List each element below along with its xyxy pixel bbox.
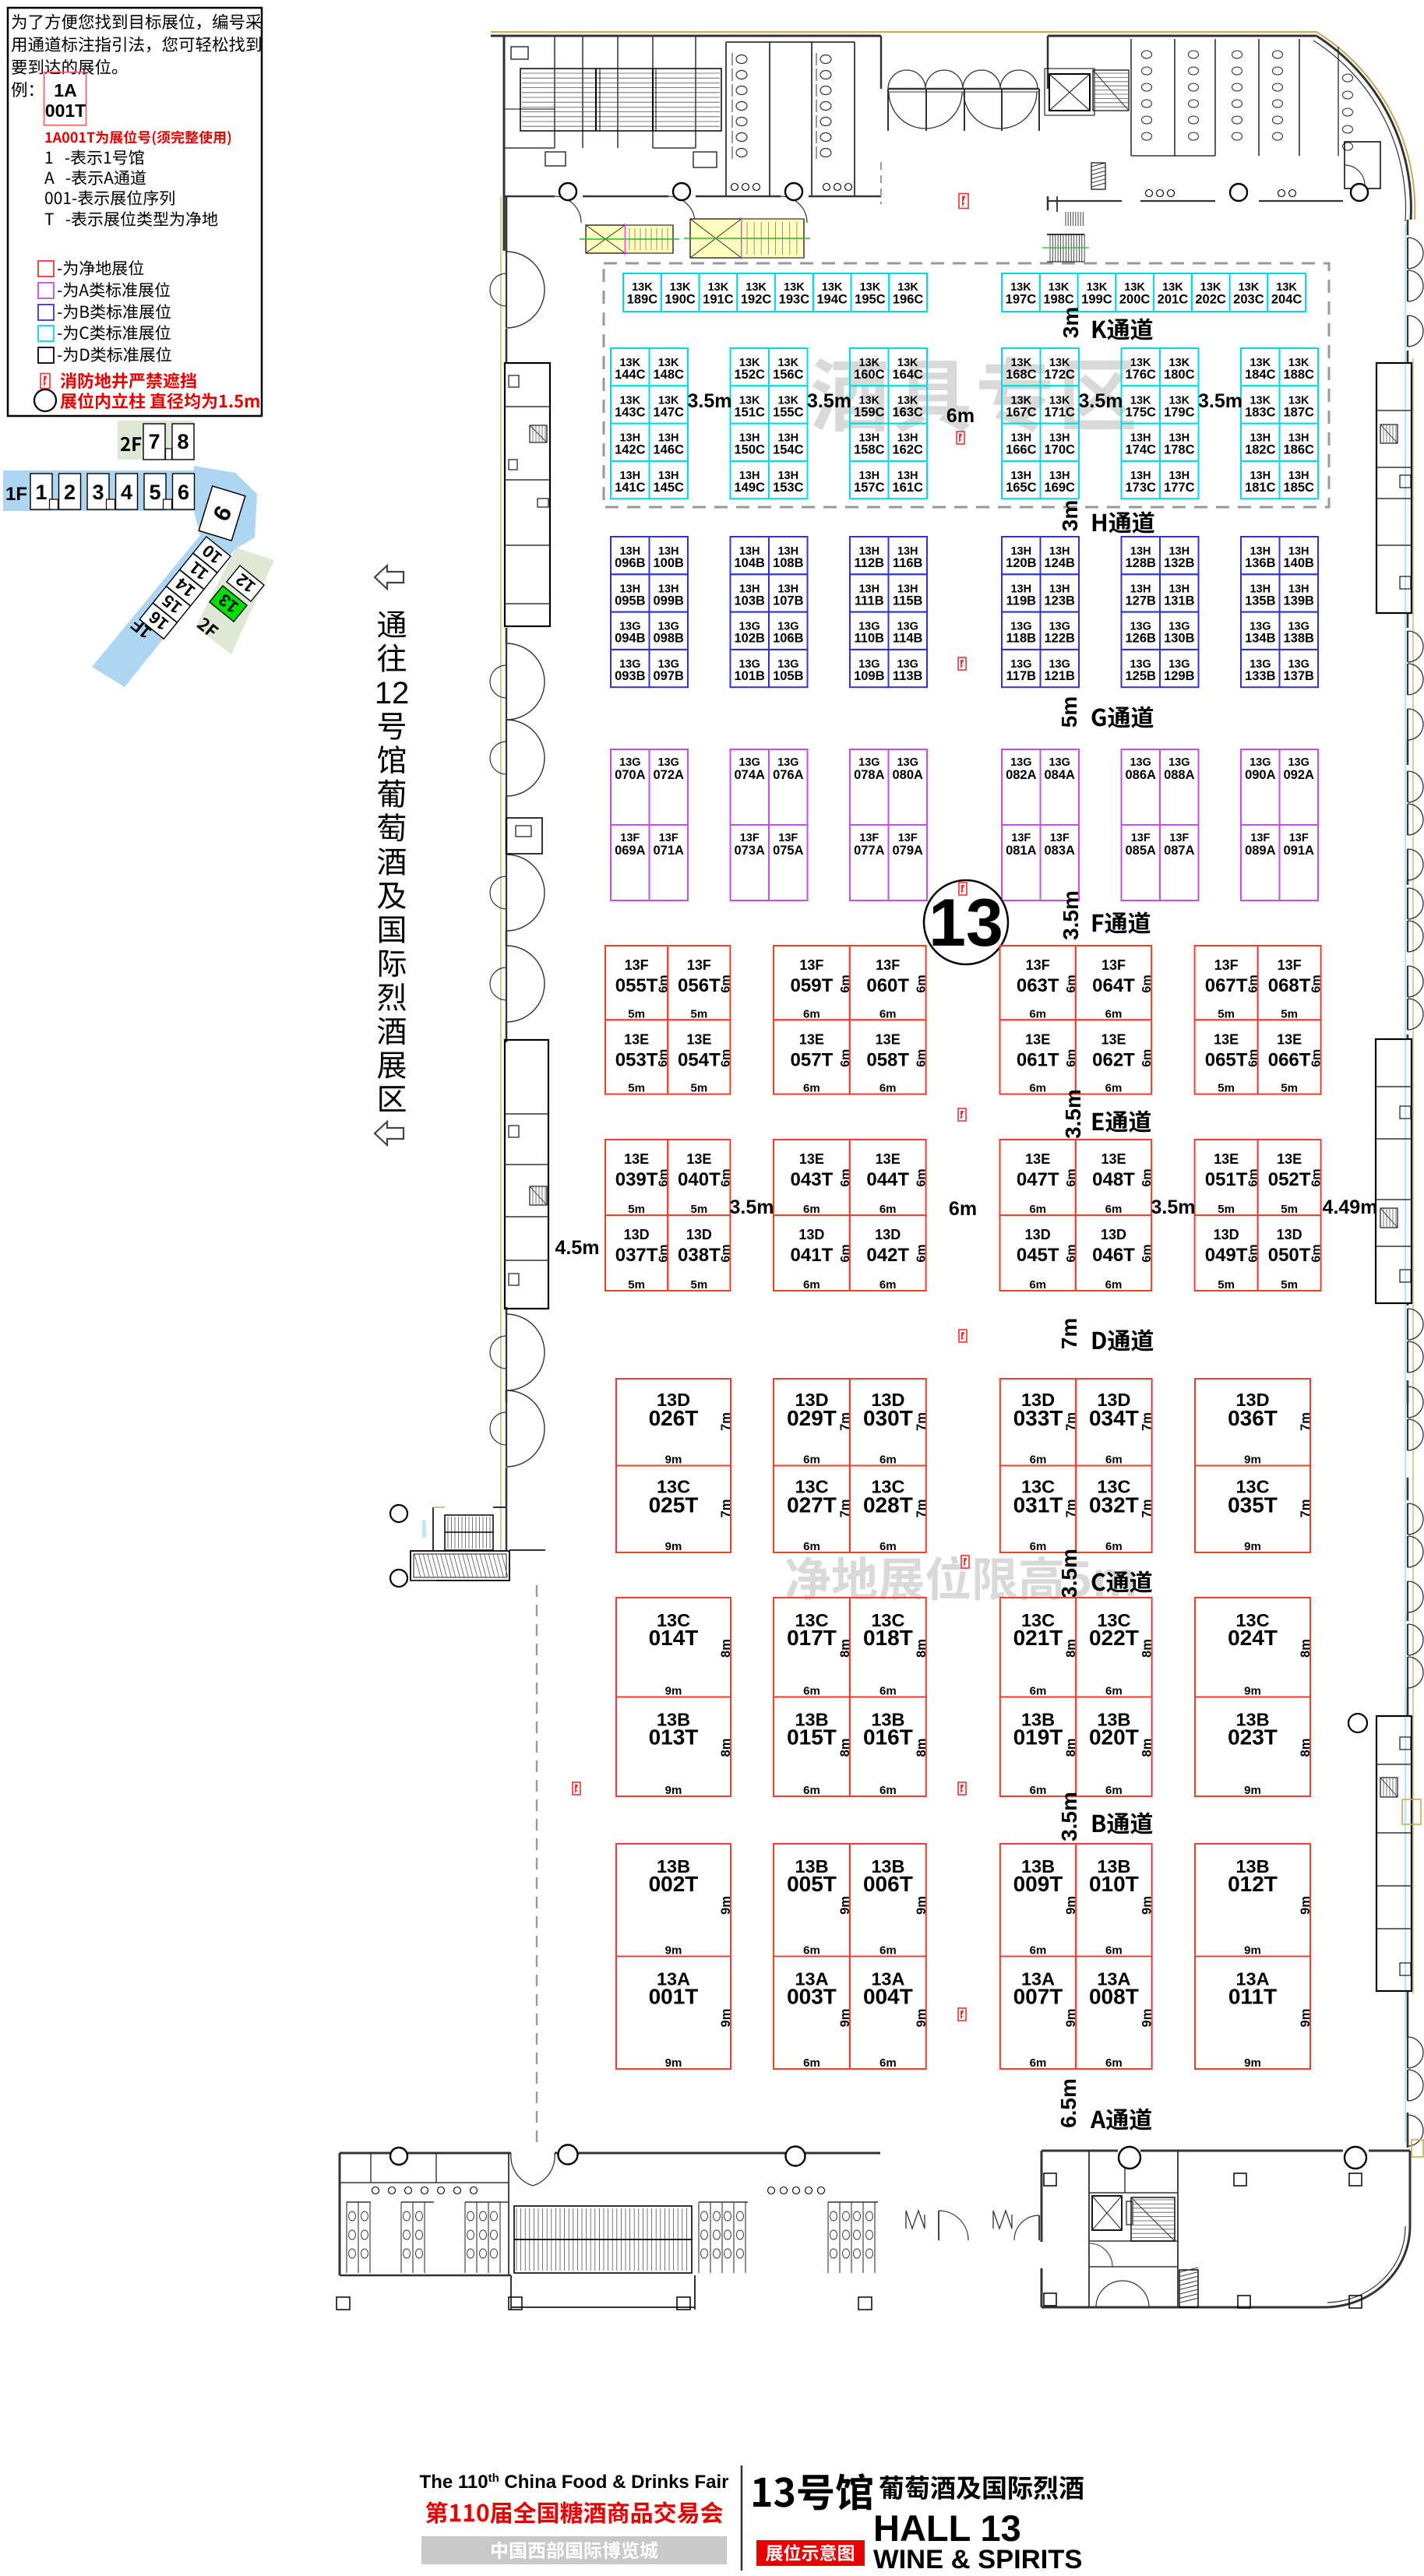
svg-text:13D: 13D [798,1227,824,1242]
svg-text:1F: 1F [5,484,27,505]
svg-text:6m: 6m [1030,1454,1047,1467]
svg-text:115B: 115B [893,594,923,608]
svg-text:6m: 6m [803,1540,820,1553]
svg-text:195C: 195C [855,293,886,307]
svg-text:025T: 025T [649,1493,699,1517]
svg-text:144C: 144C [615,368,646,382]
svg-text:097B: 097B [653,669,684,683]
svg-text:037T: 037T [615,1245,658,1266]
svg-text:013T: 013T [649,1725,699,1750]
svg-text:126B: 126B [1125,632,1156,646]
svg-text:148C: 148C [653,368,684,382]
svg-text:084A: 084A [1044,768,1075,782]
svg-text:13F: 13F [1289,832,1309,844]
svg-text:178C: 178C [1164,443,1195,457]
svg-text:13D: 13D [624,1227,650,1242]
svg-text:092A: 092A [1283,768,1314,782]
svg-text:194C: 194C [816,293,848,307]
svg-text:8m: 8m [915,1639,929,1658]
svg-text:13G: 13G [1168,756,1190,769]
svg-text:7m: 7m [1057,1318,1081,1349]
svg-text:137B: 137B [1283,669,1314,683]
svg-text:106B: 106B [773,632,804,646]
svg-text:017T: 017T [787,1626,837,1650]
svg-text:065T: 065T [1205,1049,1248,1070]
svg-text:062T: 062T [1092,1049,1135,1070]
svg-text:070A: 070A [615,768,646,782]
svg-text:6m: 6m [1029,1203,1046,1216]
svg-text:149C: 149C [734,481,765,495]
svg-text:7m: 7m [915,1499,929,1518]
svg-text:6m: 6m [1030,1685,1047,1698]
svg-text:8m: 8m [1140,1739,1154,1757]
svg-text:095B: 095B [615,594,646,608]
svg-text:163C: 163C [892,405,923,419]
svg-text:007T: 007T [1013,1985,1063,2009]
svg-text:130B: 130B [1164,632,1195,646]
svg-text:The 110th China Food & Drinks: The 110th China Food & Drinks Fair [420,2472,729,2493]
svg-text:032T: 032T [1089,1493,1139,1517]
svg-text:6m: 6m [1310,1244,1324,1262]
svg-text:12: 12 [375,676,410,710]
svg-text:098B: 098B [653,632,684,646]
svg-text:5: 5 [149,481,160,504]
svg-text:5m: 5m [691,1007,708,1020]
svg-text:023T: 023T [1228,1725,1278,1750]
svg-text:6m: 6m [1030,1784,1047,1797]
svg-text:5m: 5m [691,1203,708,1216]
svg-text:198C: 198C [1043,293,1074,307]
svg-text:164C: 164C [892,368,923,382]
svg-text:134B: 134B [1245,632,1276,646]
svg-text:13E: 13E [1277,1151,1302,1167]
svg-text:042T: 042T [866,1245,909,1266]
svg-text:3.5m: 3.5m [1057,1792,1081,1841]
svg-text:3.5m: 3.5m [1059,890,1083,940]
svg-text:094B: 094B [615,632,646,646]
svg-text:13G: 13G [858,756,879,769]
svg-text:6m: 6m [1105,1278,1123,1292]
svg-text:13E: 13E [1025,1031,1050,1047]
svg-text:010T: 010T [1089,1872,1139,1896]
svg-text:5m: 5m [1281,1203,1298,1216]
svg-text:004T: 004T [863,1985,913,2009]
svg-text:188C: 188C [1283,368,1314,382]
svg-text:015T: 015T [787,1725,837,1750]
svg-text:116B: 116B [893,556,923,570]
svg-text:125B: 125B [1125,669,1156,683]
svg-text:13E: 13E [686,1031,711,1047]
svg-text:076A: 076A [773,768,804,782]
svg-text:111B: 111B [855,594,884,608]
svg-text:9m: 9m [1244,1454,1261,1467]
svg-text:046T: 046T [1092,1245,1135,1266]
svg-text:181C: 181C [1245,481,1276,495]
svg-text:3.5m: 3.5m [807,390,851,412]
svg-text:024T: 024T [1228,1626,1278,1650]
svg-text:028T: 028T [863,1493,913,1517]
svg-text:200C: 200C [1119,293,1151,307]
svg-text:9m: 9m [1244,1944,1261,1958]
svg-text:13E: 13E [799,1151,824,1167]
svg-text:9m: 9m [665,2056,682,2070]
svg-text:072A: 072A [653,768,684,782]
svg-text:5m: 5m [1218,1278,1235,1292]
svg-text:5m: 5m [1218,1082,1235,1095]
svg-text:185C: 185C [1283,481,1314,495]
svg-text:3m: 3m [1058,500,1082,531]
svg-text:9m: 9m [1244,1540,1261,1553]
svg-text:193C: 193C [779,293,810,307]
svg-text:13G: 13G [657,756,679,769]
svg-text:13E: 13E [686,1151,711,1167]
svg-text:201C: 201C [1158,293,1189,307]
svg-text:014T: 014T [649,1626,699,1650]
svg-text:6m: 6m [803,1082,820,1095]
svg-text:176C: 176C [1125,368,1156,382]
svg-text:104B: 104B [734,556,765,570]
svg-text:008T: 008T [1089,1985,1139,2009]
svg-text:044T: 044T [866,1169,909,1190]
svg-text:6m: 6m [879,1454,897,1467]
svg-text:13F: 13F [1278,957,1302,973]
svg-text:9m: 9m [915,2009,929,2028]
svg-text:9m: 9m [665,1454,682,1467]
svg-text:3.5m: 3.5m [1061,1089,1085,1139]
svg-text:069A: 069A [615,844,646,858]
svg-text:175C: 175C [1125,405,1156,419]
svg-text:138B: 138B [1283,632,1314,646]
svg-text:061T: 061T [1017,1049,1059,1070]
svg-text:3.5m: 3.5m [1198,390,1242,412]
svg-text:7m: 7m [719,1499,733,1518]
svg-text:13F: 13F [778,832,798,844]
svg-text:6m: 6m [1140,1244,1154,1262]
svg-text:001T: 001T [45,100,86,121]
svg-text:159C: 159C [854,405,885,419]
svg-text:135B: 135B [1245,594,1276,608]
svg-text:13G: 13G [1288,756,1309,769]
svg-text:166C: 166C [1006,443,1037,457]
svg-text:034T: 034T [1089,1406,1139,1430]
svg-text:093B: 093B [615,669,646,683]
svg-text:043T: 043T [791,1169,834,1190]
svg-text:189C: 189C [627,293,658,307]
svg-text:031T: 031T [1013,1493,1063,1517]
svg-text:9m: 9m [1299,1896,1313,1915]
svg-text:158C: 158C [854,443,885,457]
svg-text:5m: 5m [691,1082,708,1095]
svg-text:079A: 079A [892,844,923,858]
svg-text:011T: 011T [1228,1985,1277,2009]
svg-text:001T: 001T [649,1985,699,2009]
svg-text:9m: 9m [665,1540,682,1553]
svg-text:6m: 6m [879,1203,897,1216]
svg-text:187C: 187C [1283,405,1314,419]
svg-text:191C: 191C [703,293,734,307]
svg-text:173C: 173C [1125,481,1156,495]
svg-text:6m: 6m [1029,1278,1046,1292]
svg-text:6m: 6m [915,1244,929,1262]
svg-text:6m: 6m [1105,1944,1123,1958]
svg-text:054T: 054T [678,1049,721,1070]
svg-text:13F: 13F [1131,832,1151,844]
svg-text:6m: 6m [915,974,929,992]
svg-text:120B: 120B [1006,556,1037,570]
svg-text:114B: 114B [893,632,923,646]
svg-text:105B: 105B [773,669,804,683]
svg-text:2: 2 [64,481,76,504]
svg-text:038T: 038T [678,1245,721,1266]
svg-text:110B: 110B [855,632,885,646]
svg-text:7m: 7m [1140,1412,1154,1431]
svg-text:9m: 9m [1140,2009,1154,2028]
svg-text:13F: 13F [1026,957,1050,973]
svg-text:4: 4 [121,481,132,504]
svg-text:068T: 068T [1268,975,1311,996]
svg-text:9m: 9m [1244,1784,1261,1797]
svg-text:202C: 202C [1195,293,1226,307]
svg-text:8m: 8m [719,1739,733,1757]
svg-text:154C: 154C [773,443,804,457]
svg-text:3.5m: 3.5m [1057,1549,1081,1598]
svg-text:180C: 180C [1164,368,1195,382]
svg-text:009T: 009T [1013,1872,1063,1896]
svg-text:3.5m: 3.5m [688,390,732,412]
svg-text:040T: 040T [678,1169,721,1190]
svg-text:8m: 8m [719,1639,733,1658]
svg-text:029T: 029T [787,1406,837,1430]
svg-text:117B: 117B [1006,669,1037,683]
svg-text:047T: 047T [1017,1169,1059,1190]
svg-text:3.5m: 3.5m [730,1196,774,1218]
svg-text:13F: 13F [876,957,900,973]
svg-text:HALL 13: HALL 13 [873,2507,1021,2549]
svg-text:13F: 13F [799,957,823,973]
svg-text:9m: 9m [665,1944,682,1958]
svg-text:005T: 005T [787,1872,837,1896]
svg-text:6m: 6m [803,1454,820,1467]
svg-text:5m: 5m [628,1082,645,1095]
svg-text:172C: 172C [1044,368,1075,382]
svg-text:5m: 5m [1281,1278,1298,1292]
svg-text:147C: 147C [653,405,684,419]
svg-text:186C: 186C [1283,443,1314,457]
svg-text:13F: 13F [1011,832,1031,844]
svg-text:13F: 13F [740,832,760,844]
svg-text:119B: 119B [1006,594,1037,608]
svg-text:132B: 132B [1164,556,1195,570]
svg-text:9m: 9m [1299,2009,1313,2028]
svg-text:13F: 13F [620,832,640,844]
svg-text:033T: 033T [1013,1406,1063,1430]
svg-text:7: 7 [148,430,160,453]
svg-text:6m: 6m [915,1168,929,1186]
svg-text:6m: 6m [915,1049,929,1067]
svg-text:190C: 190C [664,293,696,307]
svg-text:102B: 102B [734,632,765,646]
svg-text:13E: 13E [1025,1151,1050,1167]
svg-text:123B: 123B [1044,594,1075,608]
svg-text:174C: 174C [1125,443,1156,457]
svg-text:13E: 13E [799,1031,824,1047]
svg-text:170C: 170C [1044,443,1075,457]
svg-text:085A: 085A [1125,844,1156,858]
svg-text:053T: 053T [615,1049,658,1070]
svg-text:6m: 6m [1105,1082,1123,1095]
svg-text:020T: 020T [1089,1725,1139,1750]
svg-text:13G: 13G [1250,756,1271,769]
svg-text:113B: 113B [893,669,923,683]
svg-text:6m: 6m [1105,1203,1123,1216]
svg-text:13G: 13G [897,756,918,769]
svg-text:7m: 7m [1299,1412,1313,1431]
svg-text:155C: 155C [773,405,804,419]
svg-text:13E: 13E [876,1031,901,1047]
svg-text:6m: 6m [1105,1784,1123,1797]
svg-text:165C: 165C [1006,481,1037,495]
svg-text:146C: 146C [653,443,684,457]
svg-text:6m: 6m [879,2056,897,2070]
svg-text:7m: 7m [719,1412,733,1431]
svg-text:6m: 6m [879,1007,897,1020]
svg-text:049T: 049T [1205,1245,1248,1266]
svg-text:151C: 151C [734,405,765,419]
svg-text:13D: 13D [1277,1227,1302,1242]
svg-text:050T: 050T [1268,1245,1311,1266]
svg-text:057T: 057T [791,1049,834,1070]
svg-text:6m: 6m [1105,1454,1123,1467]
svg-text:8m: 8m [915,1739,929,1757]
svg-text:13F: 13F [1250,832,1270,844]
svg-text:13G: 13G [1049,756,1070,769]
svg-text:7m: 7m [915,1412,929,1431]
svg-text:6m: 6m [803,1944,820,1958]
svg-text:4.5m: 4.5m [555,1237,600,1259]
svg-text:124B: 124B [1044,556,1075,570]
svg-text:6m: 6m [803,1685,820,1698]
svg-text:019T: 019T [1013,1725,1063,1750]
svg-text:086A: 086A [1125,768,1156,782]
svg-text:13F: 13F [659,832,679,844]
svg-text:071A: 071A [653,844,684,858]
svg-text:197C: 197C [1006,293,1037,307]
svg-text:055T: 055T [615,975,658,996]
svg-text:096B: 096B [615,556,646,570]
svg-text:6m: 6m [1140,1049,1154,1067]
svg-text:140B: 140B [1283,556,1314,570]
svg-text:5m: 5m [628,1203,645,1216]
svg-text:9m: 9m [915,1896,929,1915]
svg-text:5m: 5m [1218,1203,1235,1216]
svg-text:13E: 13E [1277,1031,1302,1047]
svg-text:052T: 052T [1268,1169,1311,1190]
svg-text:6m: 6m [1140,974,1154,992]
svg-text:167C: 167C [1006,405,1037,419]
svg-text:063T: 063T [1017,975,1059,996]
svg-text:8m: 8m [1299,1639,1313,1658]
svg-text:6m: 6m [879,1082,897,1095]
svg-text:6.5m: 6.5m [1056,2078,1080,2128]
svg-text:145C: 145C [653,481,684,495]
svg-text:13D: 13D [1214,1227,1239,1242]
svg-text:118B: 118B [1006,632,1037,646]
svg-text:6m: 6m [720,1168,733,1186]
svg-text:022T: 022T [1089,1626,1139,1650]
svg-text:8m: 8m [1299,1739,1313,1757]
svg-text:13F: 13F [1169,832,1189,844]
svg-text:090A: 090A [1245,768,1276,782]
svg-text:045T: 045T [1017,1245,1059,1266]
svg-text:058T: 058T [866,1049,909,1070]
svg-text:13D: 13D [875,1227,901,1242]
svg-text:066T: 066T [1268,1049,1311,1070]
svg-text:6m: 6m [803,2056,820,2070]
svg-text:6m: 6m [879,1944,897,1958]
svg-text:6m: 6m [1310,1168,1324,1186]
svg-text:6m: 6m [1105,1007,1123,1020]
svg-text:131B: 131B [1164,594,1195,608]
svg-text:13F: 13F [1101,957,1126,973]
svg-text:012T: 012T [1228,1872,1278,1896]
svg-text:107B: 107B [773,594,804,608]
svg-text:179C: 179C [1164,405,1195,419]
svg-text:13E: 13E [876,1151,901,1167]
svg-text:199C: 199C [1081,293,1112,307]
svg-text:3: 3 [92,481,104,504]
svg-text:6m: 6m [879,1278,897,1292]
svg-text:13G: 13G [619,756,640,769]
svg-text:160C: 160C [854,368,885,382]
svg-text:122B: 122B [1044,632,1075,646]
svg-text:073A: 073A [734,844,765,858]
svg-text:6m: 6m [1140,1168,1154,1186]
svg-text:7m: 7m [1299,1499,1313,1518]
svg-text:6m: 6m [720,1244,733,1262]
svg-text:027T: 027T [787,1493,837,1517]
svg-text:168C: 168C [1006,368,1037,382]
svg-text:153C: 153C [773,481,804,495]
svg-text:9m: 9m [665,1685,682,1698]
svg-text:13G: 13G [738,756,760,769]
svg-text:WINE & SPIRITS: WINE & SPIRITS [873,2545,1082,2574]
svg-text:6m: 6m [1029,1007,1046,1020]
svg-text:6m: 6m [879,1685,897,1698]
svg-text:035T: 035T [1228,1493,1278,1517]
svg-text:6m: 6m [1105,1685,1123,1698]
svg-text:9m: 9m [665,1784,682,1797]
svg-text:9m: 9m [1244,1685,1261,1698]
svg-text:088A: 088A [1164,768,1195,782]
svg-text:6: 6 [178,481,189,504]
svg-text:051T: 051T [1205,1169,1248,1190]
svg-text:6m: 6m [803,1203,820,1216]
svg-text:6m: 6m [1030,2056,1047,2070]
svg-text:13G: 13G [1010,756,1031,769]
svg-text:8m: 8m [1140,1639,1154,1658]
svg-text:13D: 13D [686,1227,712,1242]
svg-text:6m: 6m [1310,1049,1324,1067]
svg-text:3m: 3m [1059,307,1083,338]
svg-text:1A: 1A [54,80,76,100]
svg-text:13: 13 [929,886,1003,960]
svg-text:13F: 13F [1214,957,1239,973]
svg-text:5m: 5m [628,1278,645,1292]
svg-text:13D: 13D [1101,1227,1126,1242]
svg-text:036T: 036T [1228,1406,1278,1430]
svg-text:006T: 006T [863,1872,913,1896]
svg-text:6m: 6m [949,1198,977,1220]
